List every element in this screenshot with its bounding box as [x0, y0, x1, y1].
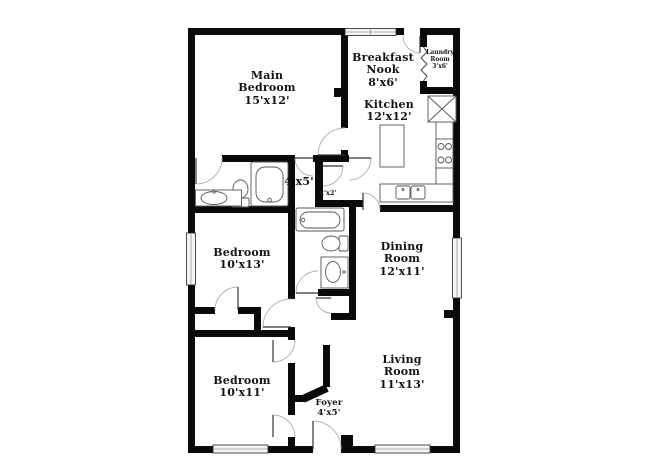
- room-dims: 8'x6': [347, 77, 419, 89]
- room-label-hall-bath: 4'x5': [280, 176, 318, 188]
- wall: [453, 298, 460, 453]
- kitchen-island: [380, 125, 404, 167]
- wall: [420, 87, 460, 94]
- room-label-main-bedroom: Main Bedroom 15'x12': [236, 70, 298, 107]
- door-arc: [316, 298, 331, 313]
- room-dims: 3'x6': [423, 63, 457, 70]
- wall: [420, 35, 427, 47]
- room-name: Bedroom: [213, 246, 271, 259]
- wall: [188, 307, 215, 314]
- wall: [188, 28, 195, 233]
- wall: [188, 28, 345, 35]
- wall: [318, 289, 356, 296]
- wall: [349, 207, 356, 320]
- wall: [396, 28, 404, 35]
- room-label-dining-room: Dining Room 12'x11': [376, 241, 428, 278]
- pantry-icon: [428, 96, 456, 122]
- wall: [341, 446, 375, 453]
- room-name: Living Room: [382, 353, 421, 378]
- room-label-breakfast-nook: Breakfast Nook 8'x6': [347, 52, 419, 89]
- wall: [380, 205, 460, 212]
- door-arc: [295, 158, 313, 176]
- room-dims: 2'x2': [313, 190, 343, 197]
- stove-icon: [436, 139, 453, 168]
- room-dims: 10'x11': [206, 387, 278, 399]
- room-dims: 12'x12': [353, 111, 425, 123]
- wall: [331, 313, 356, 320]
- room-dims: 11'x13': [376, 379, 428, 391]
- sink-vanity-icon: [321, 257, 348, 288]
- room-label-laundry: Laundry Room 3'x6': [423, 49, 457, 71]
- wall: [323, 345, 330, 387]
- room-label-bedroom-middle: Bedroom 10'x13': [206, 247, 278, 272]
- room-name: Foyer: [315, 398, 342, 408]
- room-dims: 15'x12': [236, 95, 298, 107]
- wall: [188, 330, 295, 337]
- wall: [334, 88, 348, 97]
- wall: [222, 155, 288, 162]
- wall: [315, 200, 363, 207]
- wall: [288, 437, 295, 453]
- room-name: Breakfast Nook: [352, 51, 414, 76]
- room-name: Bedroom: [213, 374, 271, 387]
- wall: [430, 446, 460, 453]
- room-name: Main Bedroom: [238, 69, 296, 94]
- room-dims: 10'x13': [206, 259, 278, 271]
- room-dims: 12'x11': [376, 266, 428, 278]
- door-arc: [318, 128, 345, 155]
- room-name: Dining Room: [381, 240, 424, 265]
- room-label-hall-closet: 2'x2': [313, 190, 343, 197]
- wall: [288, 213, 295, 299]
- room-name: Kitchen: [364, 98, 414, 111]
- door-arc: [323, 166, 343, 186]
- door-arc: [196, 158, 222, 184]
- wall: [188, 446, 213, 453]
- door-arc: [349, 158, 371, 180]
- door-arc: [263, 299, 291, 327]
- wall: [444, 310, 453, 318]
- door-arc: [313, 421, 341, 449]
- wall: [288, 395, 304, 402]
- room-label-kitchen: Kitchen 12'x12': [353, 99, 425, 124]
- floorplan-page: Main Bedroom 15'x12' Breakfast Nook 8'x6…: [0, 0, 650, 473]
- door-arc: [296, 271, 318, 293]
- bathtub-icon: [296, 208, 344, 231]
- room-dims: 4'x5': [304, 409, 354, 419]
- door-arc: [215, 287, 238, 310]
- door-arc: [363, 193, 380, 210]
- toilet-icon: [322, 236, 348, 251]
- wall: [288, 363, 295, 415]
- door-arc: [273, 340, 295, 362]
- room-label-bedroom-lower: Bedroom 10'x11': [206, 375, 278, 400]
- door-arc: [273, 415, 295, 437]
- room-label-foyer: Foyer 4'x5': [304, 399, 354, 419]
- sink-vanity-icon: [196, 190, 242, 206]
- wall: [341, 435, 353, 446]
- room-label-living-room: Living Room 11'x13': [376, 354, 428, 391]
- room-dims: 4'x5': [280, 176, 318, 188]
- wall: [313, 155, 349, 162]
- room-name: Laundry Room: [426, 49, 454, 63]
